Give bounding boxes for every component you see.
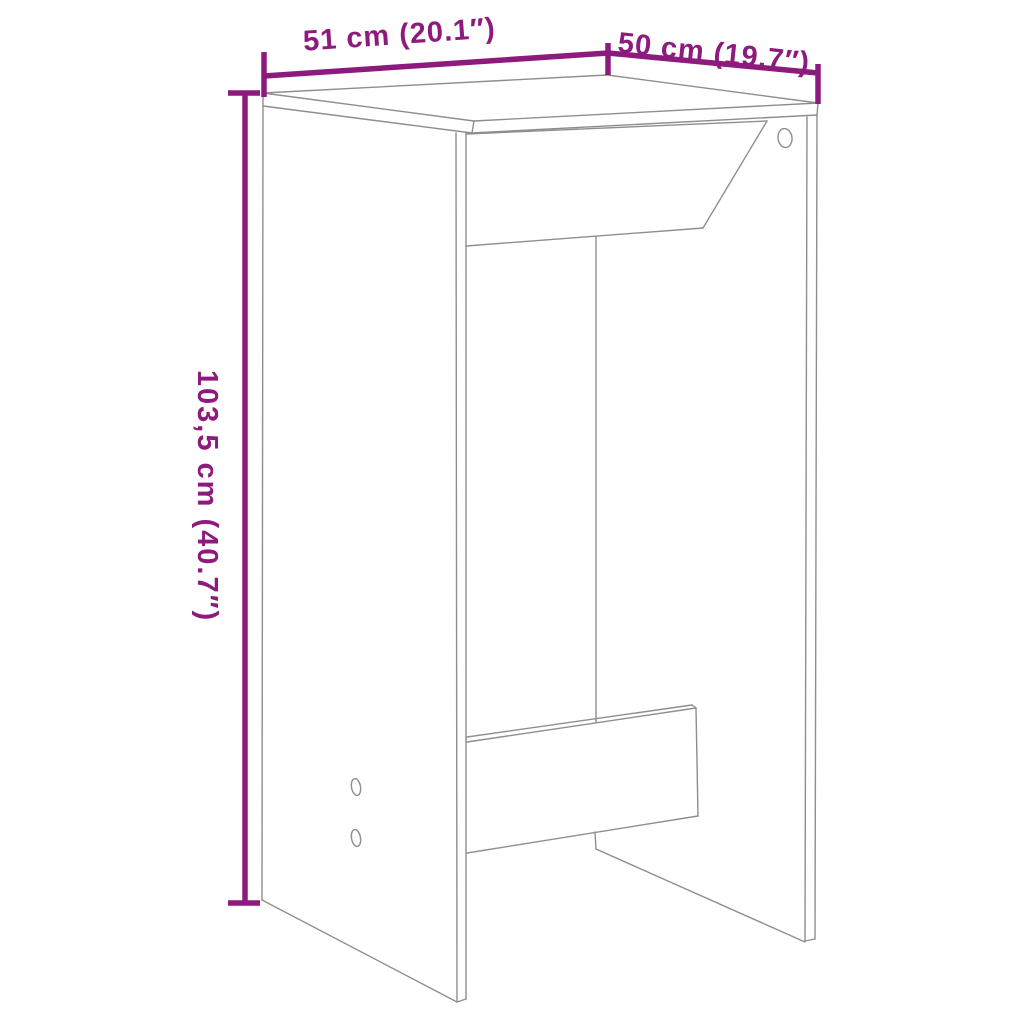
dimension-lines [228,43,818,903]
height-dimension-label: 103,5 cm (40.7″) [191,370,223,622]
left-side-panel [262,106,466,1002]
table-outline [262,75,818,1002]
width-dimension-label: 51 cm (20.1″) [302,12,497,57]
center-support-panel [595,237,596,849]
bar-table-drawing: 51 cm (20.1″) 50 cm (19.7″) 103,5 cm (40… [0,0,1024,1024]
tabletop [263,75,818,133]
product-dimension-diagram: 51 cm (20.1″) 50 cm (19.7″) 103,5 cm (40… [0,0,1024,1024]
drill-hole [350,829,362,847]
right-side-panel [596,115,817,942]
depth-dimension-label: 50 cm (19.7″) [616,27,811,79]
height-dimension-line [228,93,260,903]
drill-hole [350,778,362,796]
footrest-panel [467,705,698,853]
drill-hole [777,128,794,149]
apron-panel [466,121,767,246]
